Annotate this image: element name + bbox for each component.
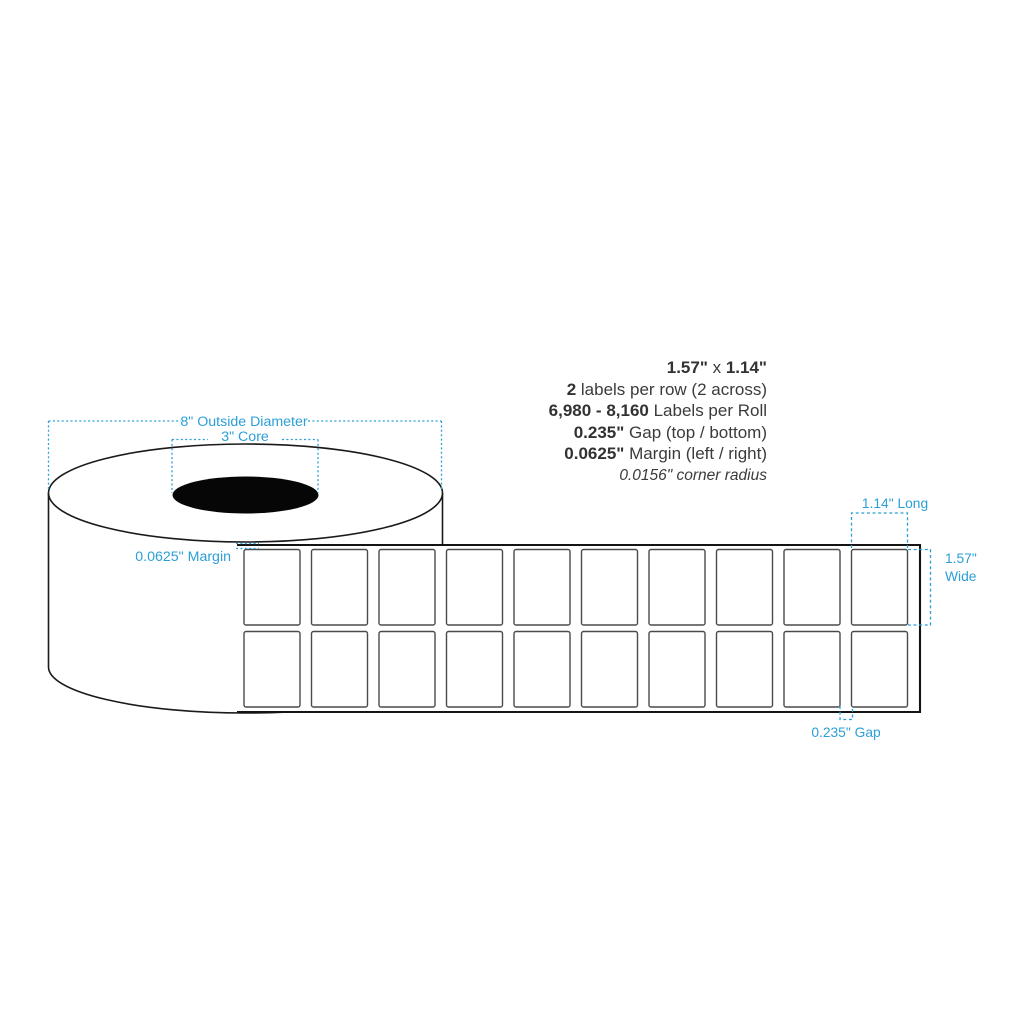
label-roll-diagram: 8" Outside Diameter 3" Core 0.0625" Marg… — [0, 0, 1024, 1024]
label-cell — [649, 632, 705, 708]
spec-gap-text: Gap (top / bottom) — [624, 423, 767, 442]
label-cell — [784, 550, 840, 626]
label-strip — [237, 545, 920, 712]
spec-corner-radius-line: 0.0156" corner radius — [549, 465, 767, 487]
label-cell — [784, 632, 840, 708]
label-cell — [852, 550, 908, 626]
spec-margin-text: Margin (left / right) — [624, 444, 767, 463]
spec-per-row-line: 2 labels per row (2 across) — [549, 379, 767, 401]
spec-gap-line: 0.235" Gap (top / bottom) — [549, 422, 767, 444]
spec-per-row-count: 2 — [567, 380, 576, 399]
label-cell — [649, 550, 705, 626]
label-cell — [244, 550, 300, 626]
long-dimension-bracket — [852, 513, 908, 548]
spec-block: 1.57" x 1.14" 2 labels per row (2 across… — [549, 357, 767, 487]
label-cell — [514, 550, 570, 626]
spec-size-separator: x — [708, 358, 726, 377]
spec-margin-value: 0.0625" — [564, 444, 624, 463]
diagram-svg: 8" Outside Diameter 3" Core 0.0625" Marg… — [0, 0, 1024, 1024]
spec-width: 1.57" — [667, 358, 708, 377]
spec-margin-line: 0.0625" Margin (left / right) — [549, 443, 767, 465]
roll-core-hole — [173, 477, 319, 514]
wide-label-line1: 1.57" — [945, 551, 977, 566]
label-cell — [717, 632, 773, 708]
gap-label: 0.235" Gap — [811, 725, 881, 740]
label-cell — [852, 632, 908, 708]
spec-per-row-text: labels per row (2 across) — [576, 380, 767, 399]
od-label: 8" Outside Diameter — [180, 414, 308, 430]
label-cell — [447, 632, 503, 708]
spec-per-roll-count: 6,980 - 8,160 — [549, 401, 649, 420]
label-cell — [514, 632, 570, 708]
spec-per-roll-text: Labels per Roll — [649, 401, 767, 420]
spec-gap-value: 0.235" — [574, 423, 625, 442]
label-cell — [447, 550, 503, 626]
label-cell — [312, 550, 368, 626]
margin-label: 0.0625" Margin — [135, 549, 231, 565]
label-cell — [379, 550, 435, 626]
core-label: 3" Core — [221, 429, 269, 445]
spec-per-roll-line: 6,980 - 8,160 Labels per Roll — [549, 400, 767, 422]
label-cell — [582, 550, 638, 626]
label-cell — [379, 632, 435, 708]
spec-length: 1.14" — [726, 358, 767, 377]
label-cell — [312, 632, 368, 708]
label-cell — [582, 632, 638, 708]
wide-label-line2: Wide — [945, 569, 977, 584]
long-label: 1.14" Long — [862, 496, 928, 511]
spec-size-line: 1.57" x 1.14" — [549, 357, 767, 379]
label-cell — [244, 632, 300, 708]
label-cell — [717, 550, 773, 626]
